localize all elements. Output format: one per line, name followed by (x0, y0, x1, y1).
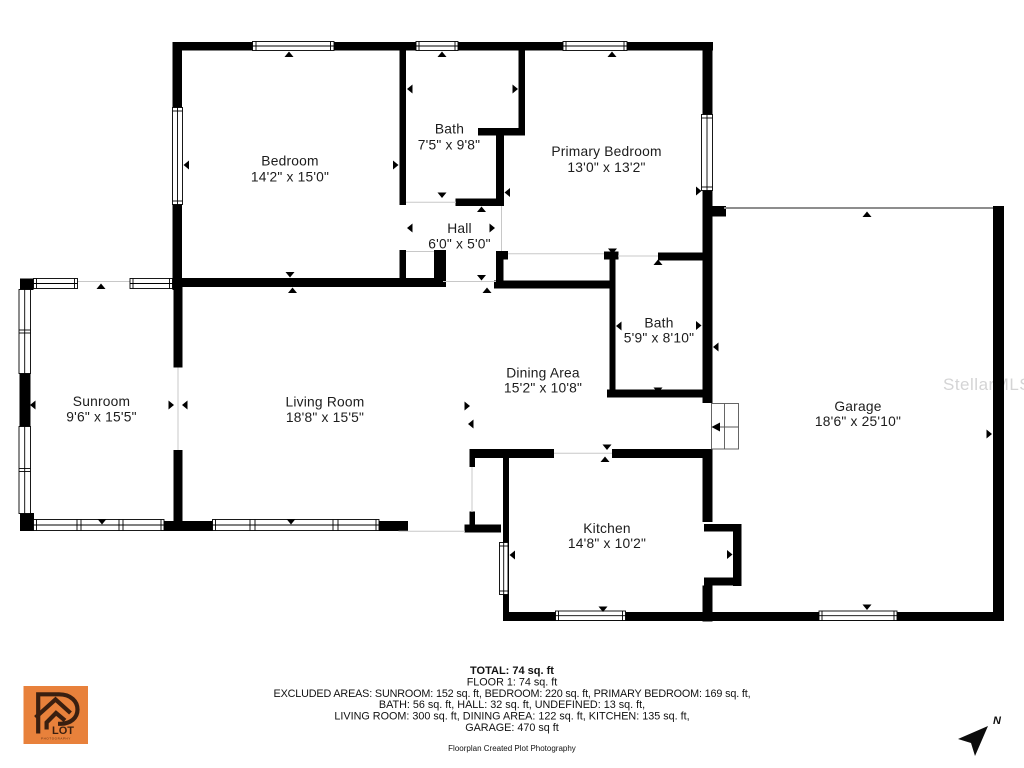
svg-text:Hall: Hall (447, 221, 472, 236)
svg-text:N: N (993, 715, 1002, 727)
svg-text:18'6" x 25'10": 18'6" x 25'10" (815, 414, 901, 429)
svg-text:Sunroom: Sunroom (73, 394, 130, 409)
svg-text:LOT: LOT (52, 725, 74, 737)
svg-text:Bedroom: Bedroom (261, 154, 318, 169)
svg-text:Living Room: Living Room (286, 394, 365, 409)
svg-text:9'6" x 15'5": 9'6" x 15'5" (66, 410, 136, 425)
svg-text:BATH: 56 sq. ft, HALL: 32 sq.: BATH: 56 sq. ft, HALL: 32 sq. ft, UNDEFI… (379, 699, 645, 711)
svg-text:GARAGE: 470 sq ft: GARAGE: 470 sq ft (465, 722, 559, 734)
svg-text:FLOOR 1: 74 sq. ft: FLOOR 1: 74 sq. ft (467, 677, 558, 689)
svg-text:5'9" x 8'10": 5'9" x 8'10" (624, 331, 694, 346)
svg-text:13'0" x 13'2": 13'0" x 13'2" (567, 160, 645, 175)
svg-text:18'8" x 15'5": 18'8" x 15'5" (286, 410, 364, 425)
svg-text:Garage: Garage (834, 399, 881, 414)
svg-text:StellarMLS: StellarMLS (943, 375, 1024, 394)
svg-text:Primary Bedroom: Primary Bedroom (551, 144, 661, 159)
svg-text:LIVING ROOM: 300 sq. ft, DININ: LIVING ROOM: 300 sq. ft, DINING AREA: 12… (334, 711, 689, 723)
svg-text:Bath: Bath (644, 316, 673, 331)
svg-text:14'8" x 10'2": 14'8" x 10'2" (568, 536, 646, 551)
svg-text:Floorplan Created Plot Photogr: Floorplan Created Plot Photography (448, 744, 576, 753)
svg-text:7'5" x 9'8": 7'5" x 9'8" (418, 138, 481, 153)
svg-text:TOTAL: 74 sq. ft: TOTAL: 74 sq. ft (470, 665, 554, 677)
svg-text:14'2" x 15'0": 14'2" x 15'0" (251, 170, 329, 185)
svg-text:6'0" x 5'0": 6'0" x 5'0" (428, 237, 491, 252)
svg-text:Dining Area: Dining Area (506, 366, 580, 381)
svg-text:Bath: Bath (435, 122, 464, 137)
svg-text:Kitchen: Kitchen (583, 521, 630, 536)
svg-text:PHOTOGRAPHY: PHOTOGRAPHY (41, 737, 71, 741)
svg-text:15'2" x 10'8": 15'2" x 10'8" (504, 381, 582, 396)
